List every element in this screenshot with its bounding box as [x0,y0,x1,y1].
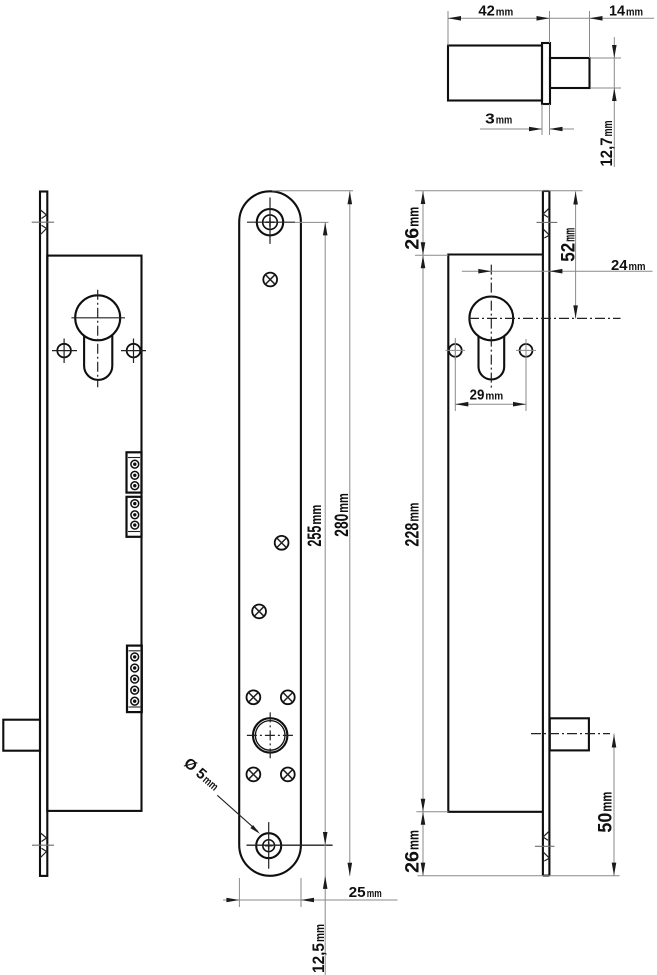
svg-text:12,5mm: 12,5mm [309,924,328,973]
svg-text:12,7mm: 12,7mm [597,121,616,167]
